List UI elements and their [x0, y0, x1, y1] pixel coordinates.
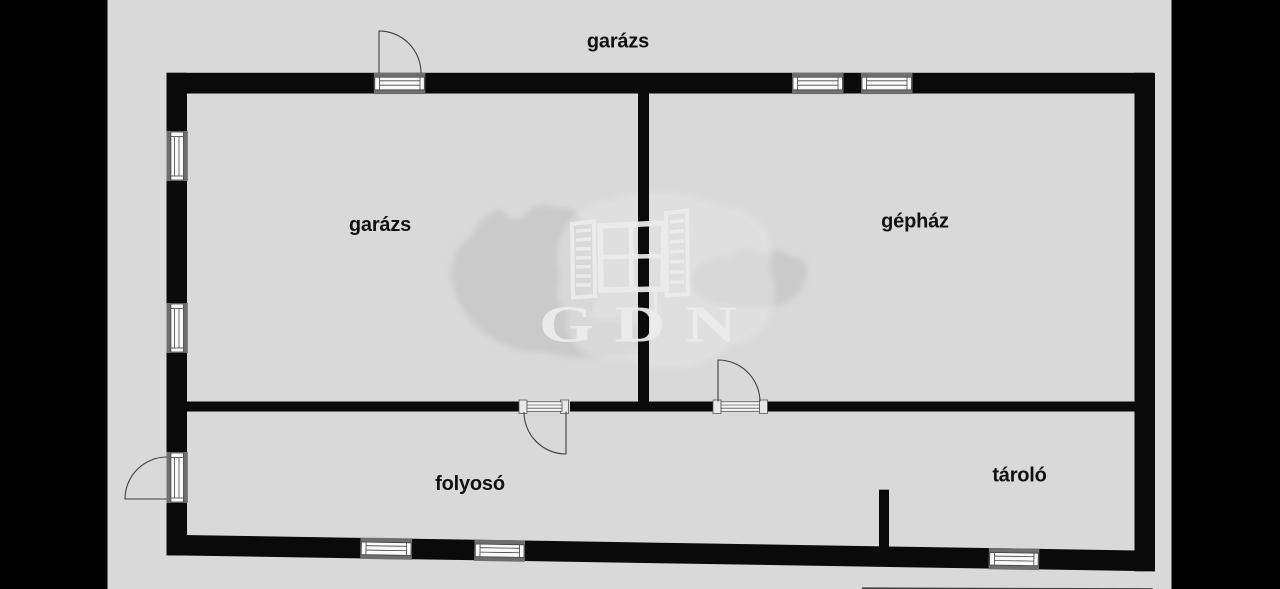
svg-text:folyosó: folyosó [435, 473, 505, 495]
svg-text:garázs: garázs [349, 214, 411, 236]
svg-text:gépház: gépház [881, 211, 949, 233]
svg-text:tároló: tároló [992, 465, 1046, 487]
svg-text:garázs: garázs [587, 31, 649, 53]
svg-text:GDN: GDN [539, 296, 757, 353]
